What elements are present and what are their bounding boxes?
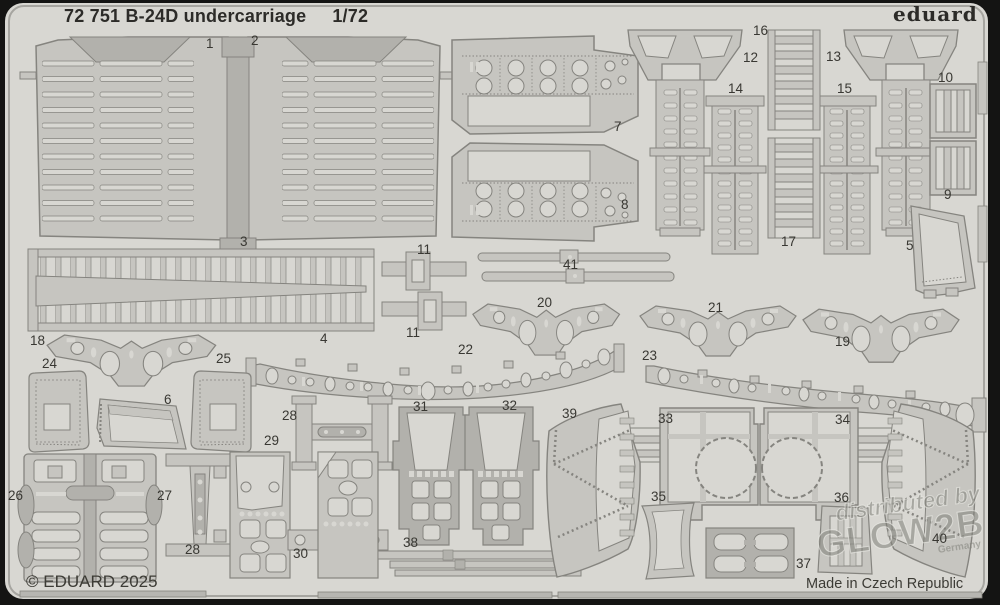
part-number-label: 23 [642, 348, 657, 363]
part-number-label: 21 [708, 300, 723, 315]
part-number-label: 13 [826, 49, 841, 64]
sheet-scale: 1/72 [332, 6, 368, 27]
part-number-label: 5 [906, 238, 914, 253]
sheet-title-text: 72 751 B-24D undercarriage [64, 6, 306, 27]
part-number-label: 7 [614, 119, 622, 134]
part-number-label: 9 [944, 187, 952, 202]
part-number-label: 41 [563, 257, 578, 272]
part-number-label: 39 [562, 406, 577, 421]
part-shape-24 [29, 371, 89, 452]
part-shape-1 [20, 37, 228, 240]
part-number-label: 27 [157, 488, 172, 503]
part-number-label: 40 [932, 531, 947, 546]
part-number-label: 3 [240, 234, 248, 249]
part-number-label: 11 [417, 242, 431, 257]
part-number-label: 6 [164, 392, 172, 407]
part-number-label: 31 [413, 399, 428, 414]
part-number-label: 33 [658, 411, 673, 426]
part-shape-15 [816, 96, 878, 254]
part-number-label: 34 [835, 412, 850, 427]
part-number-label: 26 [8, 488, 23, 503]
sheet-title: 72 751 B-24D undercarriage 1/72 [64, 6, 368, 27]
part-number-label: 38 [403, 535, 418, 550]
part-number-label: 12 [743, 50, 758, 65]
part-shape-26 [18, 454, 162, 582]
part-shape-31 [393, 407, 467, 545]
part-shape-35 [642, 503, 694, 579]
part-shape-14 [704, 96, 766, 254]
part-number-label: 16 [753, 23, 768, 38]
part-number-label: 1 [206, 36, 214, 51]
part-shape-9 [930, 141, 976, 195]
part-number-label: 8 [621, 197, 629, 212]
part-number-label: 30 [293, 546, 308, 561]
part-number-label: 10 [938, 70, 953, 85]
part-shape-25 [191, 371, 251, 452]
part-number-label: 2 [251, 33, 259, 48]
part-number-label: 24 [42, 356, 57, 371]
made-in-text: Made in Czech Republic [806, 576, 963, 592]
part-number-label: 18 [30, 333, 45, 348]
part-number-label: 20 [537, 295, 552, 310]
part-number-label: 4 [320, 331, 328, 346]
part-number-label: 19 [835, 334, 850, 349]
part-number-label: 36 [834, 490, 849, 505]
part-number-label: 17 [781, 234, 796, 249]
part-shape-32 [465, 407, 539, 545]
part-number-label: 35 [651, 489, 666, 504]
copyright-text: © EDUARD 2025 [26, 572, 158, 592]
part-shape-10 [930, 84, 976, 138]
part-shape-2 [248, 37, 456, 240]
part-shape-3-4 [28, 249, 374, 331]
part-number-label: 29 [264, 433, 279, 448]
part-number-label: 11 [406, 325, 420, 340]
part-number-label: 32 [502, 398, 517, 413]
part-number-label: 14 [728, 81, 743, 96]
part-number-label: 28 [282, 408, 297, 423]
part-number-label: 22 [458, 342, 473, 357]
part-number-label: 28 [185, 542, 200, 557]
part-number-label: 25 [216, 351, 231, 366]
product-photo: 72 751 B-24D undercarriage 1/72 eduard ©… [0, 0, 1000, 605]
eduard-logo: eduard [893, 2, 978, 26]
part-number-label: 37 [796, 556, 811, 571]
part-shape-6 [97, 399, 186, 449]
part-number-label: 15 [837, 81, 852, 96]
